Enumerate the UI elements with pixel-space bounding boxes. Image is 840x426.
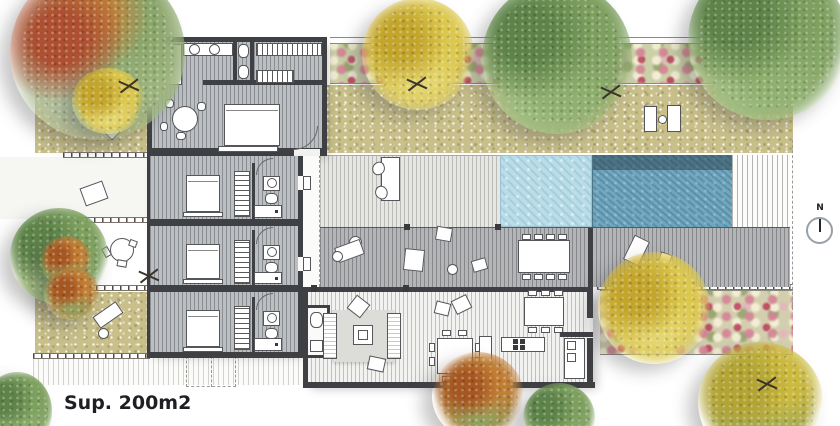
shower-drain: [275, 343, 278, 346]
sliding-door-leaf: [303, 176, 311, 190]
sink: [209, 44, 220, 55]
wall: [307, 287, 593, 292]
toilet: [310, 312, 323, 328]
wall: [322, 37, 327, 152]
north-label: N: [812, 203, 828, 213]
partition: [250, 40, 254, 85]
appliance: [567, 353, 576, 362]
chair: [534, 274, 543, 280]
bidet: [238, 65, 249, 79]
chair: [558, 274, 567, 280]
chair: [522, 274, 531, 280]
bed-bench: [183, 212, 223, 217]
chair: [429, 343, 435, 352]
sink: [310, 340, 323, 352]
boundary-dashed: [792, 140, 793, 310]
sun-lounger: [644, 106, 657, 132]
tree-green-small: [523, 383, 595, 426]
chair: [197, 102, 206, 111]
sofa: [323, 313, 337, 359]
cooktop-burner: [513, 339, 518, 344]
bed-linen-line: [188, 316, 218, 317]
sink: [267, 313, 277, 323]
roof-edge-dashed: [319, 155, 320, 287]
shower-drain: [275, 210, 278, 213]
floor-cushion: [435, 226, 453, 243]
bed-linen-line: [226, 110, 278, 111]
shower-drain: [275, 277, 278, 280]
pool-shallow-end: [500, 155, 592, 227]
chair: [176, 132, 186, 140]
tree-orange: [44, 268, 100, 320]
closet: [234, 171, 250, 217]
open-deck: [320, 155, 500, 227]
tree-yellow: [362, 0, 474, 110]
chair: [528, 290, 537, 296]
chair: [442, 330, 451, 336]
side-table: [98, 328, 109, 339]
chair: [528, 327, 537, 333]
chair: [541, 327, 550, 333]
sofa: [387, 313, 401, 359]
wall: [147, 219, 305, 226]
chair: [546, 274, 555, 280]
deck-wall-segment: [588, 228, 593, 287]
area-label: Sup. 200m2: [64, 392, 191, 414]
closet-rail: [256, 70, 294, 83]
kitchen-sink: [567, 341, 576, 350]
canopy-dashed-line: [211, 356, 212, 387]
bed-linen-line: [188, 181, 218, 182]
wall: [147, 352, 305, 358]
floor-cushion: [403, 248, 425, 272]
kitchen-wall: [560, 332, 593, 337]
chair: [546, 234, 555, 240]
column: [404, 224, 410, 230]
door-opening: [294, 149, 320, 156]
chair: [116, 259, 127, 268]
pouf: [332, 251, 343, 262]
coffee-table-tray: [358, 330, 368, 340]
chair: [541, 290, 550, 296]
bed-bench: [218, 146, 278, 152]
sink: [189, 44, 200, 55]
sink: [267, 247, 277, 257]
tree-yellow: [598, 252, 710, 364]
toilet: [238, 44, 249, 58]
walkway-south: [33, 358, 311, 385]
closet: [234, 306, 250, 350]
side-table: [658, 115, 667, 124]
bed-bench: [183, 279, 223, 284]
table-round: [172, 106, 198, 132]
wall: [587, 292, 593, 388]
sliding-door-leaf: [303, 257, 311, 271]
tie-path: [63, 152, 150, 158]
branch-glyph: [118, 80, 140, 92]
site-plan: Sup. 200m2 N: [0, 0, 840, 426]
chair: [160, 122, 168, 131]
kitchen-table: [524, 297, 564, 326]
pouf: [447, 264, 458, 275]
closet: [234, 240, 250, 284]
deck-boundary-line: [320, 227, 790, 228]
column: [403, 285, 409, 292]
pool-deep-end: [592, 155, 732, 227]
bed-bench: [183, 347, 223, 352]
sun-lounger: [667, 105, 681, 132]
chair: [458, 330, 467, 336]
column: [495, 224, 501, 230]
cooktop-burner: [520, 339, 525, 344]
branch-glyph: [756, 378, 778, 390]
branch-glyph: [600, 86, 622, 98]
cooktop-burner: [513, 345, 518, 350]
closet-rail: [256, 43, 322, 56]
tree-yellow: [72, 68, 144, 134]
bed-linen-line: [188, 250, 218, 251]
wall: [147, 285, 305, 292]
sink: [267, 178, 277, 188]
chair: [429, 357, 435, 366]
partition: [233, 40, 237, 85]
cooktop-burner: [520, 345, 525, 350]
branch-glyph: [138, 270, 160, 282]
outdoor-dining-table: [518, 240, 570, 273]
column: [311, 285, 317, 292]
toilet: [265, 193, 278, 204]
chair: [554, 290, 563, 296]
chair: [522, 234, 531, 240]
chair: [534, 234, 543, 240]
north-needle: [819, 219, 821, 232]
tie-path: [33, 353, 150, 359]
pool-side-deck: [732, 155, 790, 227]
chair: [558, 234, 567, 240]
branch-glyph: [406, 78, 428, 90]
